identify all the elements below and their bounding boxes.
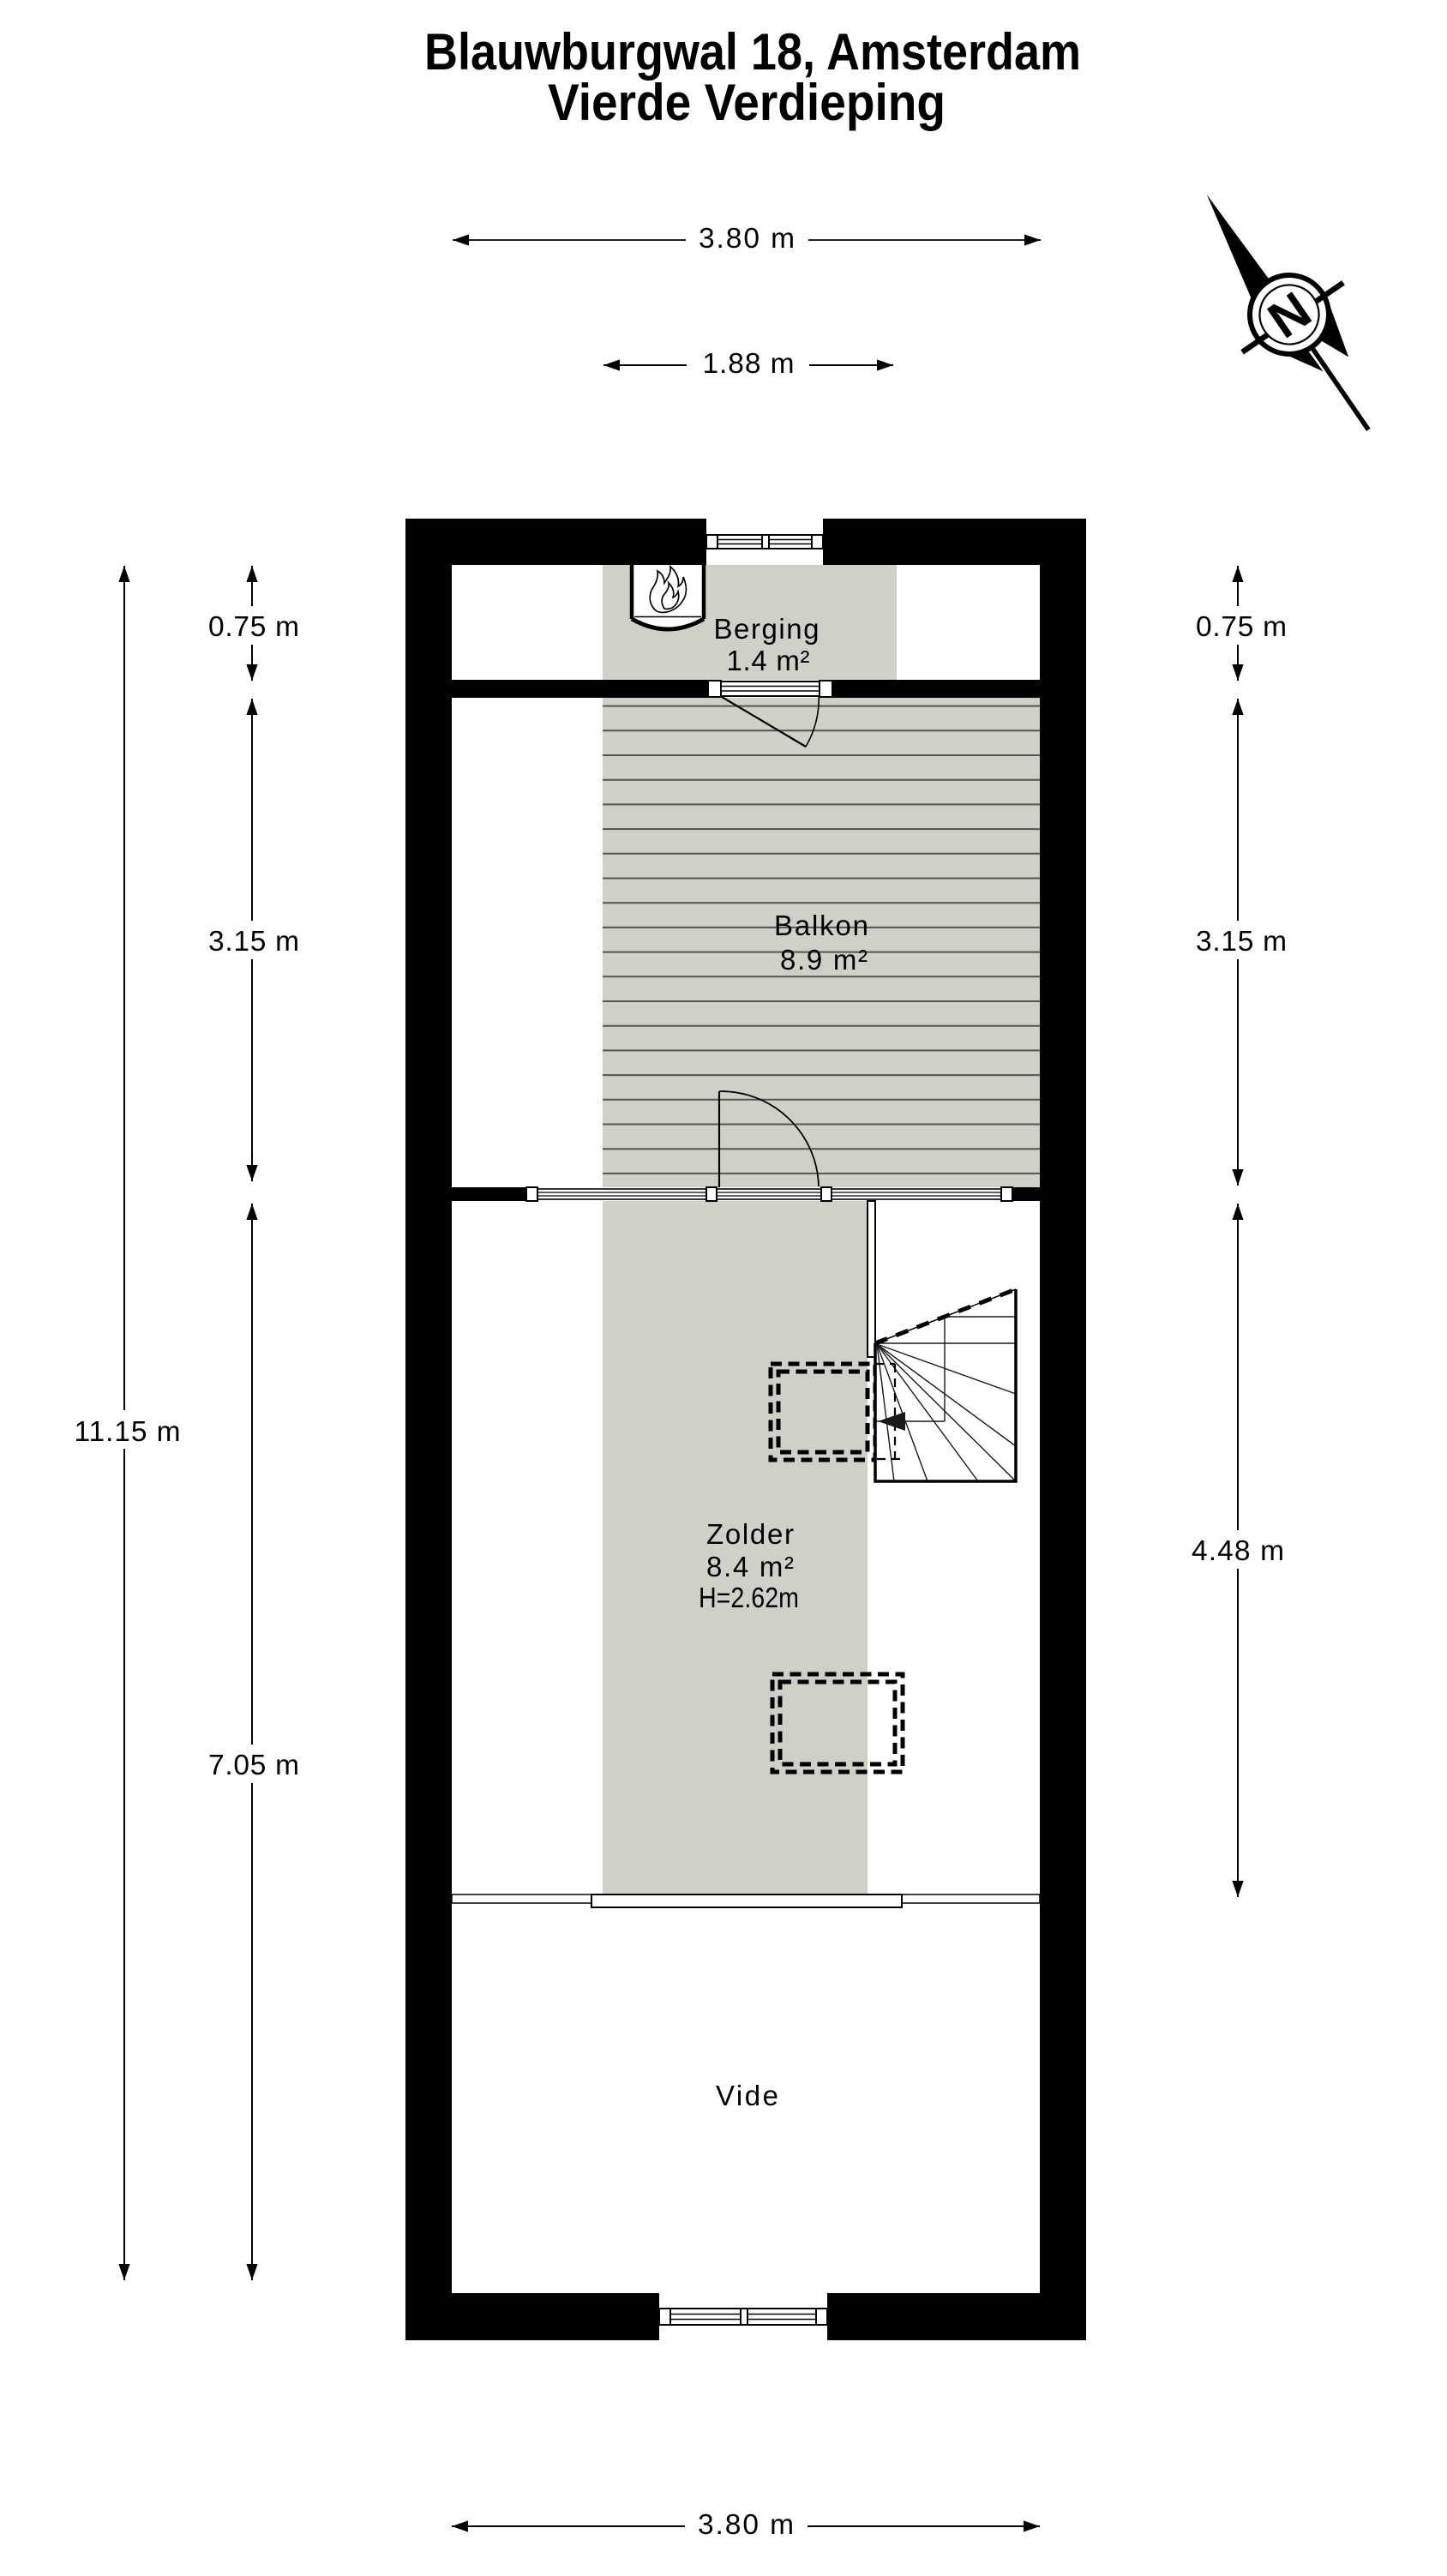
svg-text:Berging: Berging xyxy=(714,613,820,645)
svg-text:3.80 m: 3.80 m xyxy=(698,2509,794,2541)
svg-text:H=2.62m: H=2.62m xyxy=(699,1582,799,1613)
svg-text:3.80 m: 3.80 m xyxy=(699,223,795,255)
svg-text:8.4 m²: 8.4 m² xyxy=(706,1551,794,1582)
svg-text:11.15 m: 11.15 m xyxy=(75,1416,181,1448)
svg-text:1.4 m²: 1.4 m² xyxy=(727,645,810,676)
svg-text:3.15 m: 3.15 m xyxy=(208,926,299,958)
svg-text:0.75 m: 0.75 m xyxy=(208,611,299,643)
svg-text:7.05 m: 7.05 m xyxy=(208,1750,299,1781)
svg-text:3.15 m: 3.15 m xyxy=(1196,926,1287,958)
svg-text:Vierde Verdieping: Vierde Verdieping xyxy=(548,74,946,131)
svg-text:Vide: Vide xyxy=(716,2080,778,2111)
svg-text:8.9 m²: 8.9 m² xyxy=(780,944,868,976)
svg-text:0.75 m: 0.75 m xyxy=(1196,611,1287,643)
svg-text:Balkon: Balkon xyxy=(774,910,868,941)
svg-text:4.48 m: 4.48 m xyxy=(1192,1535,1284,1567)
svg-text:Zolder: Zolder xyxy=(706,1518,794,1550)
svg-text:1.88 m: 1.88 m xyxy=(703,348,795,380)
svg-text:Blauwburgwal 18, Amsterdam: Blauwburgwal 18, Amsterdam xyxy=(424,23,1081,81)
